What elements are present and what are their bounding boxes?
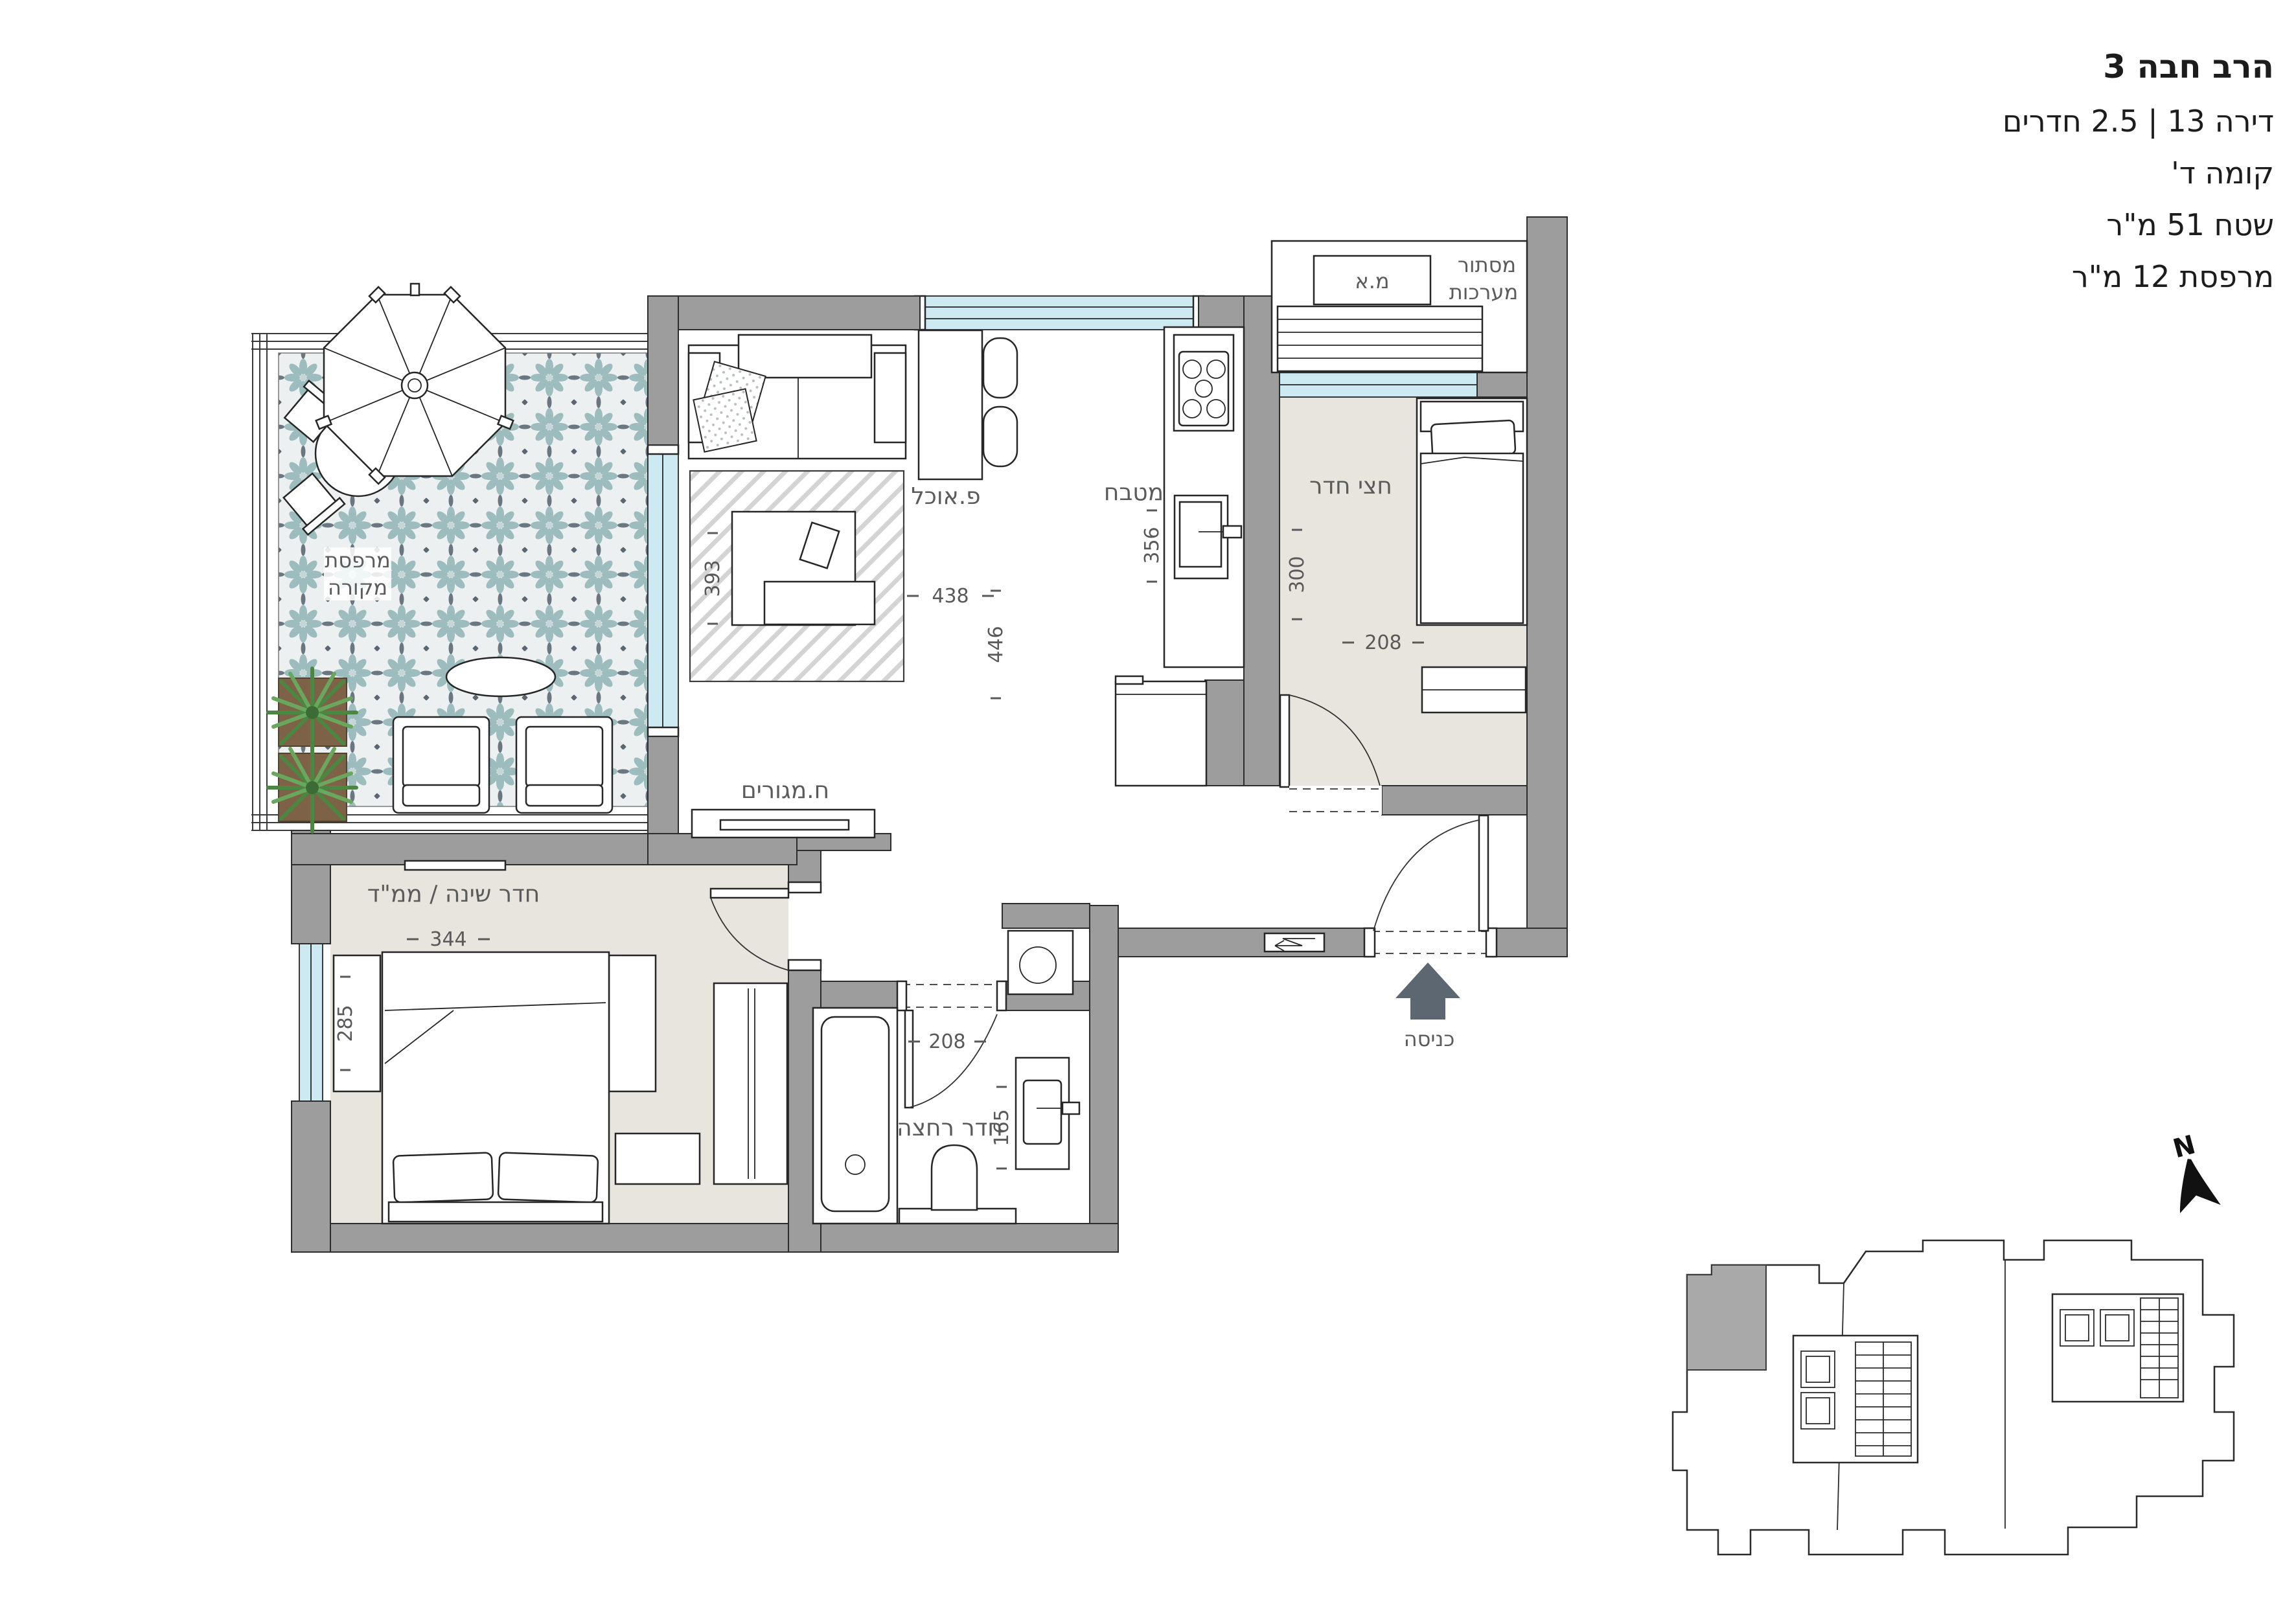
dim-bathroom-height: 165 — [991, 1109, 1013, 1146]
dining-chair-2 — [983, 407, 1017, 466]
north-arrow-icon: N — [2160, 1127, 2221, 1215]
stove — [1174, 335, 1234, 431]
dining-corner: פ.אוכל — [911, 330, 1017, 510]
entrance-label: כניסה — [1404, 1027, 1455, 1051]
key-plan — [1673, 1240, 2234, 1555]
louvers — [1278, 306, 1482, 371]
refrigerator — [1116, 676, 1206, 786]
half-room-label: חצי חדר — [1309, 473, 1392, 499]
single-bed — [1417, 398, 1527, 625]
living-label: ח.מגורים — [741, 777, 829, 804]
dim-living-height: 446 — [985, 626, 1007, 663]
double-bed — [334, 952, 656, 1224]
sofa-pillow-2 — [693, 389, 756, 451]
entrance-niche — [1265, 933, 1324, 952]
bedroom-label: חדר שינה / ממ"ד — [367, 881, 540, 907]
systems-label-2: מערכות — [1449, 280, 1519, 304]
washing-machine — [1008, 931, 1073, 994]
bathroom-sink — [1016, 1058, 1079, 1169]
dim-bedroom-width: 344 — [430, 928, 466, 951]
sofa — [689, 335, 906, 459]
floor-plan-page: מ.א מסתור מערכות — [0, 0, 2296, 1607]
bathroom: חדר רחצה 208 165 — [813, 981, 1079, 1224]
apartment-info: דירה 13 | 2.5 חדרים — [2003, 104, 2274, 139]
bathroom-label: חדר רחצה — [897, 1115, 1003, 1141]
key-plan-unit-highlight — [1687, 1265, 1766, 1370]
entrance-arrow-icon — [1395, 963, 1460, 1020]
balcony-armchair-2 — [516, 717, 612, 813]
side-table — [446, 657, 555, 696]
systems-concealment: מ.א מסתור מערכות — [1272, 241, 1527, 372]
ac-unit-label: מ.א — [1355, 269, 1389, 293]
tv-console — [692, 810, 875, 838]
dim-bathroom-width: 208 — [928, 1031, 965, 1053]
systems-label-1: מסתור — [1458, 253, 1516, 277]
area-info: שטח 51 מ"ר — [2003, 207, 2274, 242]
key-plan-core-a — [1793, 1336, 1918, 1463]
floor-plan-drawing: מ.א מסתור מערכות — [0, 0, 2296, 1607]
north-label: N — [2170, 1130, 2198, 1164]
bathroom-door-leaf — [905, 1010, 913, 1108]
balcony-area-info: מרפסת 12 מ"ר — [2003, 259, 2274, 294]
balcony-label-1: מרפסת — [325, 548, 391, 573]
dim-rug: 393 — [702, 560, 724, 597]
bed-pillow-1 — [393, 1152, 493, 1202]
bed-pillow-2 — [498, 1152, 598, 1202]
entrance-door-leaf — [1479, 815, 1488, 931]
floor-info: קומה ד' — [2003, 155, 2274, 190]
bathtub — [813, 1008, 897, 1224]
coffee-table — [732, 512, 875, 625]
bedroom-shelf — [405, 861, 505, 870]
toilet — [899, 1145, 1016, 1224]
balcony-label-2: מקורה — [328, 575, 387, 600]
dim-living-width: 438 — [932, 585, 969, 608]
key-plan-core-b — [2052, 1294, 2183, 1402]
dining-label: פ.אוכל — [911, 483, 980, 510]
bedroom-door-leaf — [711, 889, 788, 898]
dim-bedroom-height: 285 — [334, 1005, 357, 1042]
kitchen-label: מטבח — [1104, 479, 1164, 506]
balcony-armchair-1 — [393, 717, 489, 813]
dining-table — [919, 330, 982, 479]
dim-kitchen: 356 — [1141, 527, 1164, 564]
title-block: הרב חבה 3 דירה 13 | 2.5 חדרים קומה ד' שט… — [2003, 48, 2274, 311]
bedroom-bench — [615, 1134, 700, 1184]
living-top-window — [920, 296, 1199, 330]
entrance: כניסה — [1265, 815, 1497, 1051]
project-title: הרב חבה 3 — [2003, 48, 2274, 85]
wardrobe — [714, 983, 787, 1184]
dining-chair-1 — [983, 338, 1017, 398]
dim-half-room-height: 300 — [1286, 556, 1309, 593]
half-room-dresser — [1422, 667, 1526, 712]
dim-half-room-width: 208 — [1364, 632, 1401, 654]
